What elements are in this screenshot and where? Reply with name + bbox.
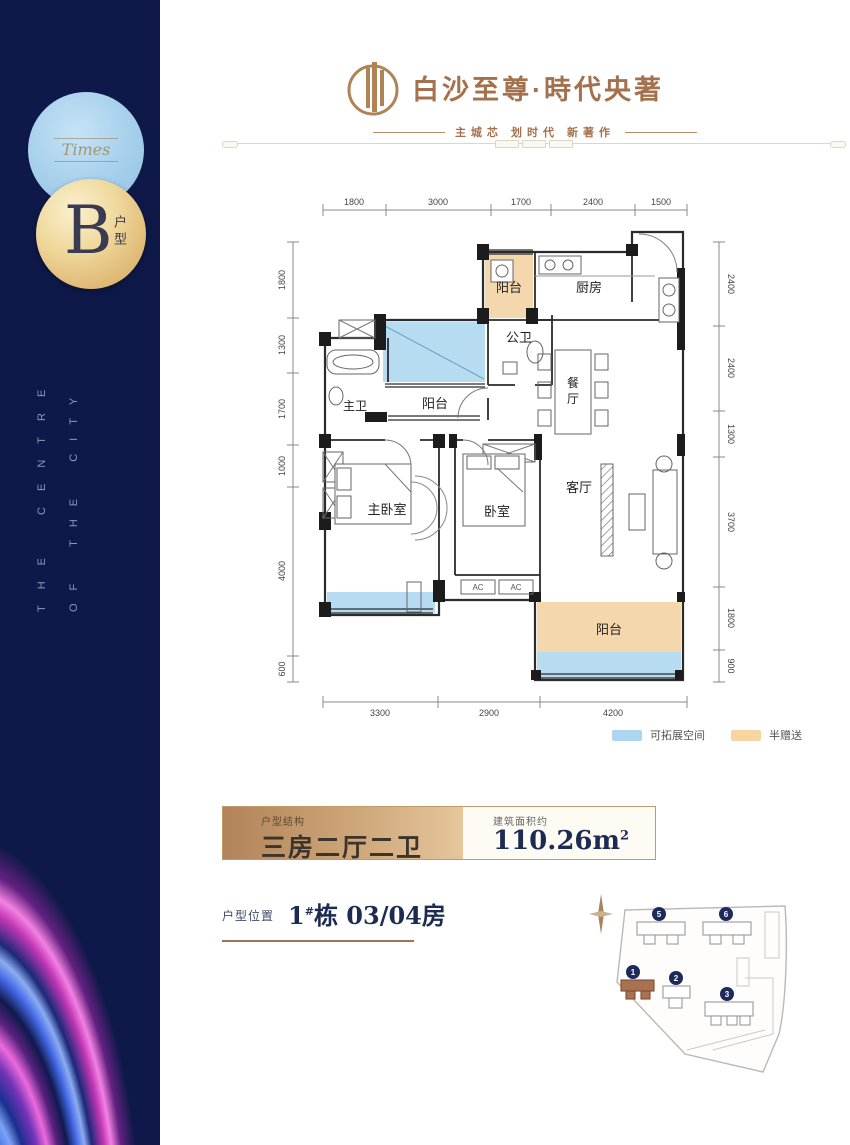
svg-text:6: 6 [724, 910, 729, 919]
left-sidebar: Times B 户型 THE CENTRE OF THE CITY [0, 0, 160, 1145]
project-tagline: 主城芯 划时代 新著作 [455, 124, 615, 140]
unit-structure-panel: 户型结构 三房二厅二卫 [223, 807, 463, 859]
svg-text:900: 900 [726, 658, 735, 673]
vertical-text-of-the-city: OF THE CITY [68, 300, 80, 612]
tagline-line-left [373, 132, 445, 133]
structure-value: 三房二厅二卫 [261, 828, 463, 864]
legend-swatch-tan [731, 730, 761, 741]
svg-text:2400: 2400 [726, 358, 735, 378]
svg-text:4200: 4200 [603, 708, 623, 718]
room-label-living: 客厅 [566, 480, 592, 495]
svg-text:3: 3 [725, 990, 730, 999]
floorplan: 1800 3000 1700 2400 1500 3300 2900 4200 … [235, 182, 735, 735]
svg-text:4000: 4000 [277, 561, 287, 581]
unit-area-panel: 建筑面积约 110.26m2 [463, 807, 655, 859]
room-label-balcony-top: 阳台 [496, 280, 522, 295]
room-label-master-bedroom: 主卧室 [367, 502, 406, 517]
room-label-master-bath: 主卫 [343, 399, 367, 413]
svg-text:600: 600 [277, 661, 287, 676]
vertical-text-the-centre: THE CENTRE [36, 282, 48, 612]
unit-position-row: 户型位置 1#栋 03/04房 [222, 904, 446, 928]
zone-expand-master [327, 592, 435, 613]
header-logo: 白沙至尊·時代央著 主城芯 划时代 新著作 [160, 56, 850, 140]
project-title: 白沙至尊·時代央著 [412, 68, 664, 107]
compass-icon [589, 894, 613, 934]
room-label-dining-1: 餐 [567, 375, 579, 390]
svg-text:1800: 1800 [344, 197, 364, 207]
unit-type-caption: 户型 [110, 215, 129, 249]
svg-text:2900: 2900 [479, 708, 499, 718]
svg-text:AC: AC [472, 583, 483, 592]
svg-text:3300: 3300 [370, 708, 390, 718]
emblem-script-word: Times [62, 142, 111, 158]
room-label-balcony-bottom: 阳台 [596, 622, 622, 637]
room-label-public-bath: 公卫 [506, 330, 532, 345]
svg-text:1300: 1300 [277, 335, 287, 355]
room-label-bedroom: 卧室 [484, 504, 510, 519]
emblem-ornament-line [54, 138, 118, 139]
svg-text:2400: 2400 [726, 274, 735, 294]
svg-text:1800: 1800 [726, 608, 735, 628]
svg-text:1300: 1300 [726, 424, 735, 444]
svg-text:1000: 1000 [277, 456, 287, 476]
floorplan-legend: 可拓展空间 半赠送 [612, 727, 802, 743]
svg-text:1700: 1700 [511, 197, 531, 207]
room-label-kitchen: 厨房 [576, 280, 602, 295]
site-map: 5 6 1 2 3 [585, 882, 810, 1092]
svg-text:AC: AC [510, 583, 521, 592]
emblem-ornament-line [54, 161, 118, 162]
svg-text:2400: 2400 [583, 197, 603, 207]
position-value: 1#栋 03/04房 [288, 904, 446, 928]
tagline-line-right [625, 132, 697, 133]
ornamental-divider [228, 140, 840, 147]
room-label-dining-2: 厅 [567, 392, 579, 406]
site-map-svg: 5 6 1 2 3 [585, 882, 810, 1087]
room-label-balcony-mid: 阳台 [422, 396, 448, 411]
svg-text:3700: 3700 [726, 512, 735, 532]
aurora-light-streaks [0, 688, 160, 1145]
legend-item-gift: 半赠送 [731, 727, 802, 743]
legend-swatch-blue [612, 730, 642, 741]
unit-info-bar: 户型结构 三房二厅二卫 建筑面积约 110.26m2 [222, 806, 656, 860]
svg-text:1500: 1500 [651, 197, 671, 207]
svg-text:3000: 3000 [428, 197, 448, 207]
svg-text:2: 2 [674, 974, 679, 983]
svg-text:1700: 1700 [277, 399, 287, 419]
svg-text:1: 1 [631, 968, 636, 977]
gold-circle-badge: B 户型 [36, 179, 146, 289]
position-label: 户型位置 [222, 907, 274, 928]
unit-type-letter: B [64, 185, 113, 277]
floorplan-svg: 1800 3000 1700 2400 1500 3300 2900 4200 … [235, 182, 735, 730]
structure-label: 户型结构 [261, 813, 463, 828]
svg-text:1800: 1800 [277, 270, 287, 290]
logo-building-icon [346, 56, 400, 118]
ac-labels: AC AC [472, 583, 521, 592]
legend-item-expandable: 可拓展空间 [612, 727, 705, 743]
svg-text:5: 5 [657, 910, 662, 919]
area-value: 110.26m2 [493, 828, 655, 854]
position-underline [222, 940, 414, 942]
